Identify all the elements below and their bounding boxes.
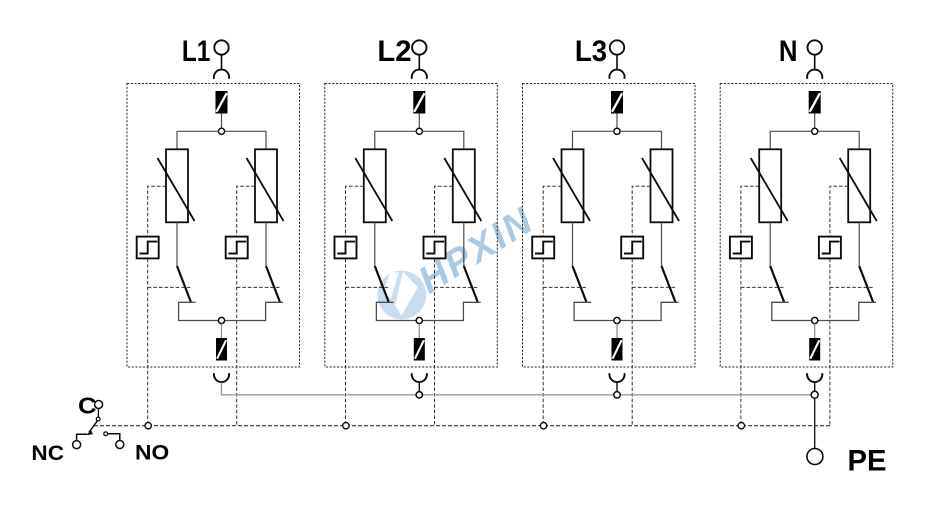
svg-text:NC: NC xyxy=(31,441,64,465)
svg-text:NO: NO xyxy=(135,440,169,464)
svg-text:N: N xyxy=(779,34,798,67)
svg-text:C: C xyxy=(78,394,97,419)
svg-text:L2: L2 xyxy=(377,35,411,68)
svg-text:L1: L1 xyxy=(182,34,210,68)
svg-text:L3: L3 xyxy=(575,35,607,68)
svg-text:PE: PE xyxy=(848,444,887,477)
